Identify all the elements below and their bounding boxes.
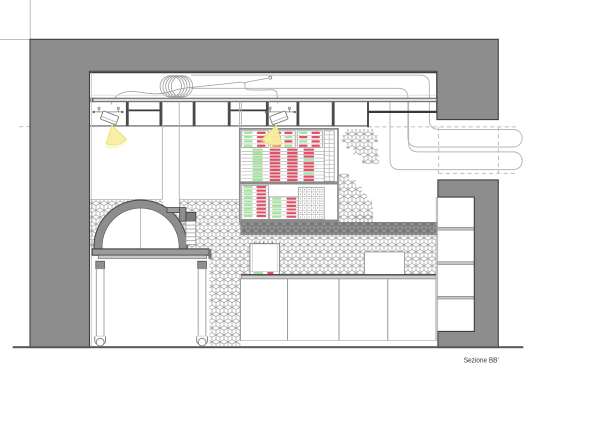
svg-text:Sezione BB': Sezione BB' [464, 355, 499, 364]
